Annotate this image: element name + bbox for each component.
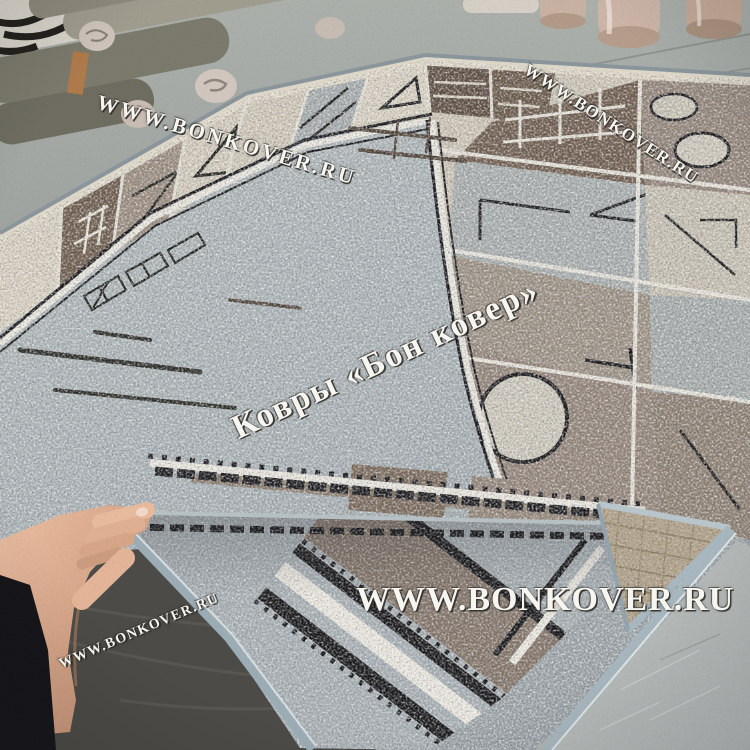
watermark-bottom-main: WWW.BONKOVER.RU [356, 581, 734, 619]
carpet-product-photo: WWW.BONKOVER.RU WWW.BONKOVER.RU Ковры «Б… [0, 0, 750, 750]
